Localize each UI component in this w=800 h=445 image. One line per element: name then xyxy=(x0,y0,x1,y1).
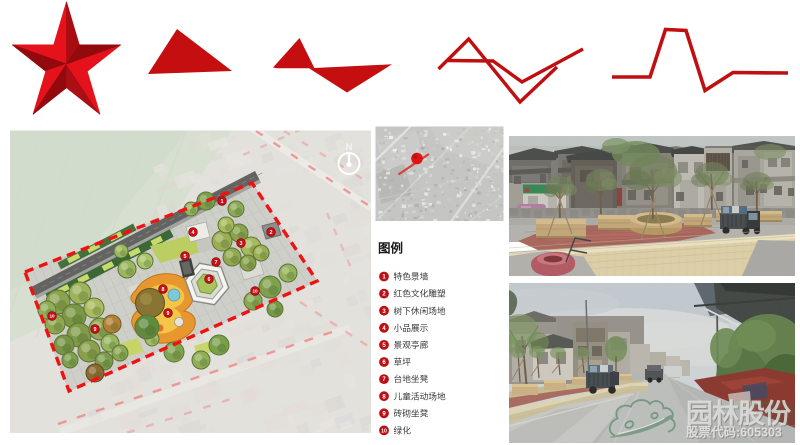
svg-text:4: 4 xyxy=(192,230,195,236)
svg-text:红色文化雕塑: 红色文化雕塑 xyxy=(394,288,446,299)
svg-text:股票代码:605303: 股票代码:605303 xyxy=(686,425,782,440)
svg-text:园林股份: 园林股份 xyxy=(686,399,791,429)
svg-text:图例: 图例 xyxy=(378,241,403,256)
svg-text:6: 6 xyxy=(208,277,211,283)
svg-text:儿童活动场地: 儿童活动场地 xyxy=(394,390,446,401)
svg-text:9: 9 xyxy=(94,327,97,333)
svg-text:特色景墙: 特色景墙 xyxy=(394,271,429,282)
svg-text:2: 2 xyxy=(270,230,273,236)
svg-text:1: 1 xyxy=(221,199,224,205)
svg-text:9: 9 xyxy=(167,311,170,317)
svg-text:景观亭廊: 景观亭廊 xyxy=(394,339,429,350)
svg-text:绿化: 绿化 xyxy=(394,425,412,436)
svg-text:N: N xyxy=(346,142,353,153)
svg-text:台地坐凳: 台地坐凳 xyxy=(394,373,429,384)
svg-text:10: 10 xyxy=(381,429,387,435)
svg-text:10: 10 xyxy=(49,314,55,319)
svg-text:5: 5 xyxy=(184,254,187,260)
svg-text:10: 10 xyxy=(252,289,258,294)
svg-text:3: 3 xyxy=(240,241,243,247)
svg-text:草坪: 草坪 xyxy=(394,356,412,367)
svg-text:7: 7 xyxy=(215,260,218,266)
svg-text:砖砌坐凳: 砖砌坐凳 xyxy=(394,407,429,418)
svg-text:小品展示: 小品展示 xyxy=(394,323,429,333)
svg-text:树下休闲场地: 树下休闲场地 xyxy=(394,305,446,316)
svg-text:8: 8 xyxy=(162,287,165,293)
